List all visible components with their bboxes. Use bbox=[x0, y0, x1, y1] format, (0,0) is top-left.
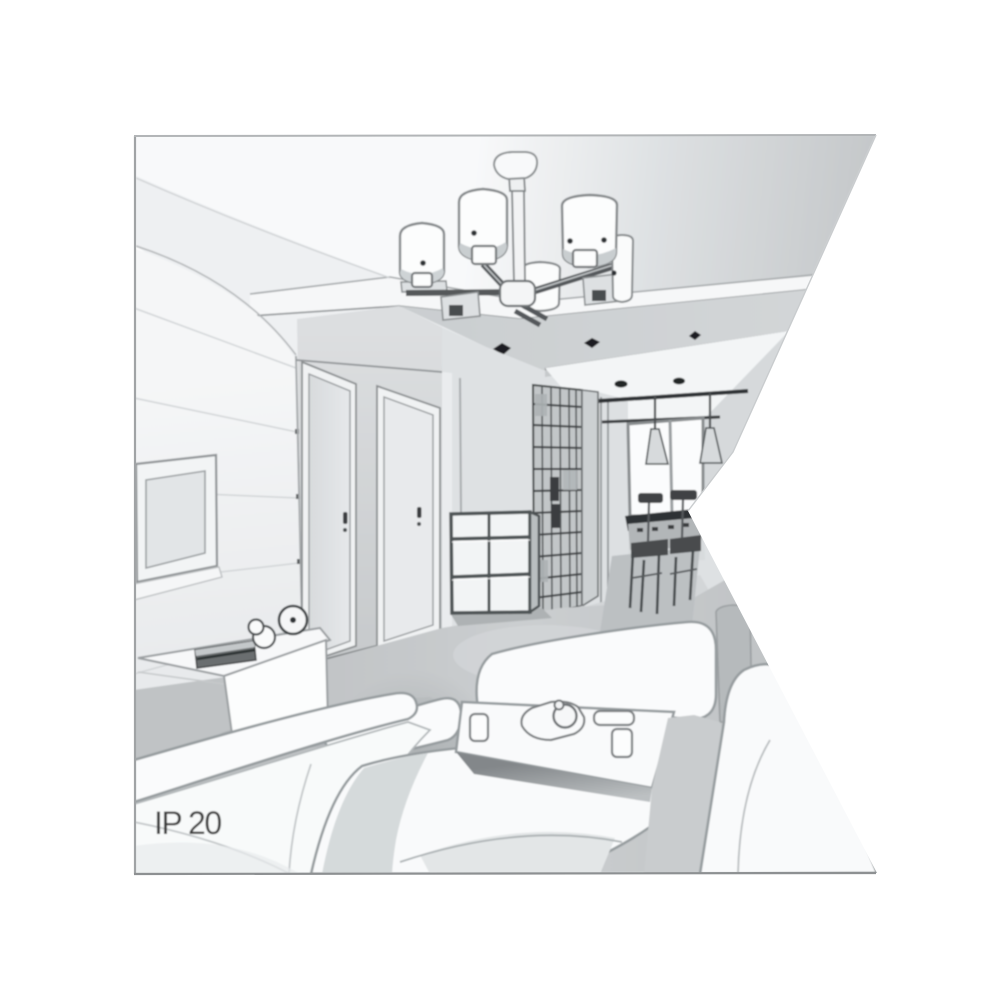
svg-text:IP 20: IP 20 bbox=[154, 805, 221, 841]
